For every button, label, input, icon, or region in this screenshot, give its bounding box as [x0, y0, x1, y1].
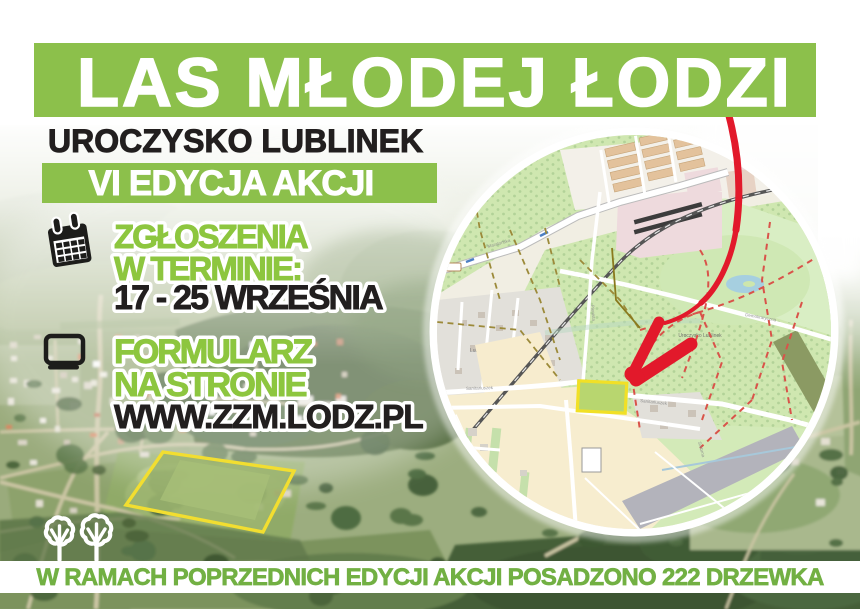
- svg-text:Uroczysko Lublinek: Uroczysko Lublinek: [678, 333, 722, 339]
- svg-text:WWW.ZZM.LODZ.PL: WWW.ZZM.LODZ.PL: [114, 399, 423, 436]
- svg-text:17 - 25 WRZEŚNIA: 17 - 25 WRZEŚNIA: [114, 279, 383, 317]
- svg-text:LAS MŁODEJ ŁODZI: LAS MŁODEJ ŁODZI: [77, 44, 793, 121]
- svg-text:W RAMACH POPRZEDNICH EDYCJI AK: W RAMACH POPRZEDNICH EDYCJI AKCJI POSADZ…: [36, 564, 824, 591]
- svg-text:Sanitariuszek: Sanitariuszek: [466, 385, 494, 391]
- svg-text:VI EDYCJA AKCJI: VI EDYCJA AKCJI: [89, 164, 374, 203]
- svg-text:UROCZYSKO LUBLINEK: UROCZYSKO LUBLINEK: [48, 123, 423, 159]
